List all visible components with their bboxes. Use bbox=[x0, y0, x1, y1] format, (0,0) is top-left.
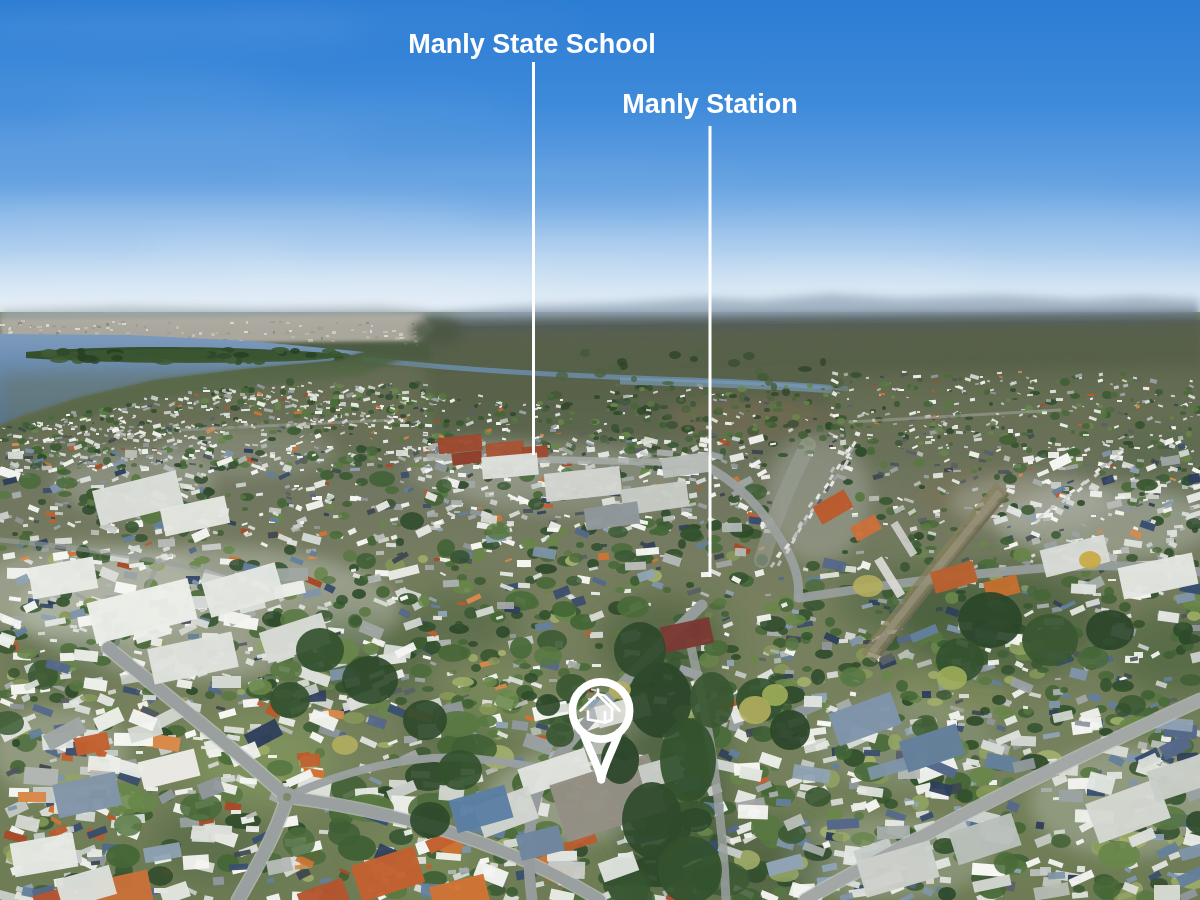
svg-text:Manly Station: Manly Station bbox=[622, 89, 798, 119]
svg-text:Manly State School: Manly State School bbox=[408, 29, 656, 59]
